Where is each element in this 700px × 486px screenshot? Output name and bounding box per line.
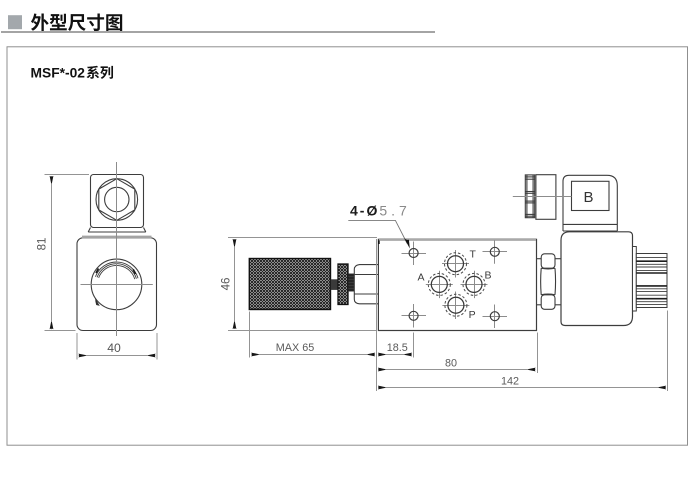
svg-text:T: T [470,249,477,261]
svg-text:46: 46 [221,278,233,291]
svg-text:MAX 65: MAX 65 [276,342,314,354]
svg-text:40: 40 [107,341,121,355]
svg-text:80: 80 [445,357,457,369]
svg-text:MSF*-02: MSF*-02 [31,66,86,81]
svg-text:B: B [485,269,492,281]
svg-text:142: 142 [501,375,519,387]
svg-text:P: P [469,309,476,321]
svg-text:A: A [418,271,425,283]
svg-text:81: 81 [37,238,49,251]
svg-text:4-Ø5.7: 4-Ø5.7 [350,202,411,218]
svg-text:B: B [583,189,593,206]
svg-text:18.5: 18.5 [387,342,408,354]
